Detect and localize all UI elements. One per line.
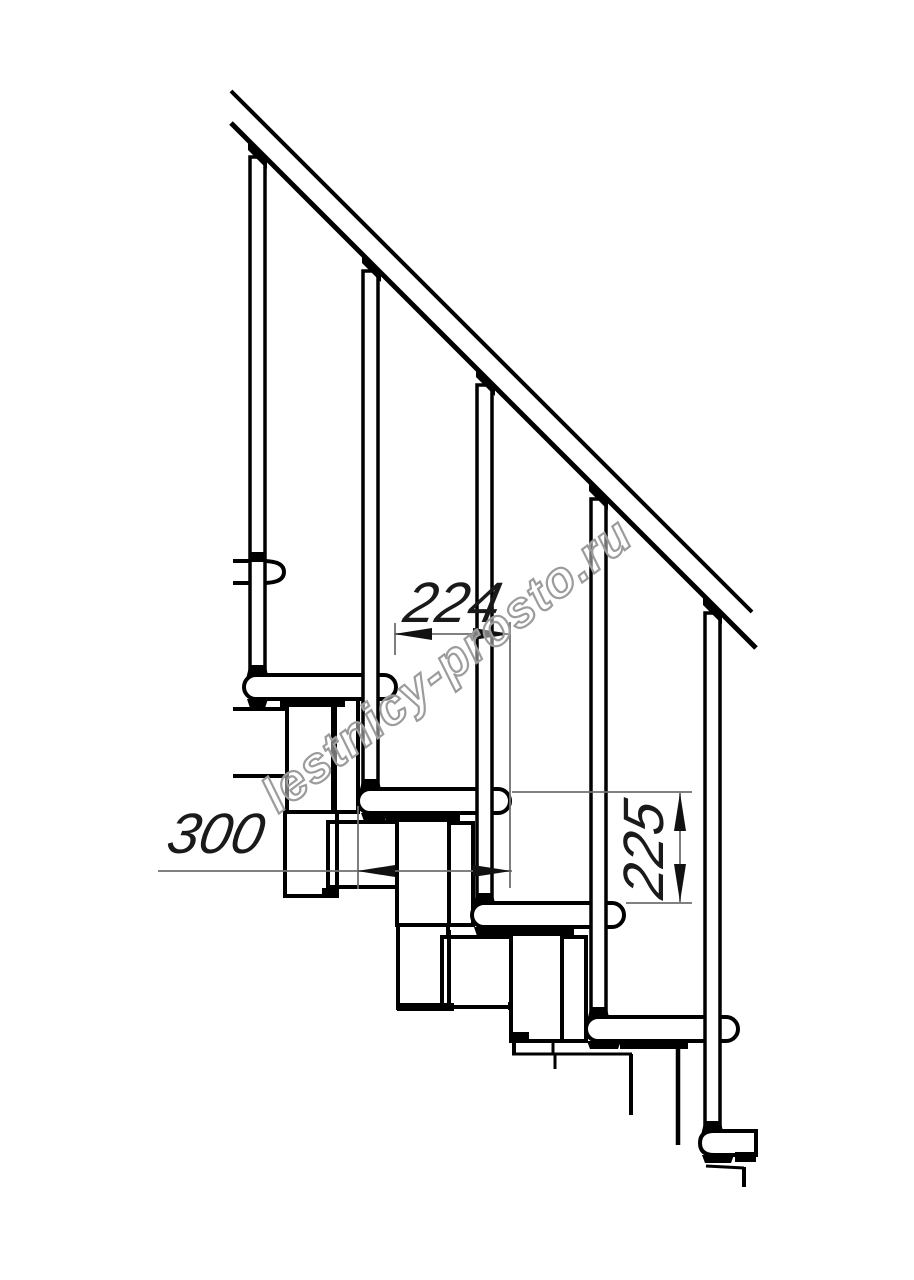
baluster-foot [588, 1007, 610, 1019]
staircase-drawing-canvas: 224 300 225 lestnicy-prosto.ru [0, 0, 914, 1280]
baluster-post [250, 157, 265, 675]
module-joint-black [511, 1032, 529, 1041]
baluster-foot [360, 779, 382, 791]
step-mount-clamp [702, 1155, 734, 1163]
module-break-line [706, 1166, 744, 1168]
baluster-post [705, 613, 720, 1131]
baluster-foot [474, 893, 496, 905]
baluster-foot [247, 665, 269, 677]
module-socket [442, 937, 518, 1007]
dimension-label-tread-depth: 300 [162, 803, 271, 866]
dimension-label-riser-height: 225 [613, 794, 676, 904]
baluster-landing-collar [249, 552, 266, 562]
module-joint-black [397, 1003, 454, 1011]
step-tread-partial [700, 1131, 756, 1155]
module-box [397, 820, 450, 925]
step-mount-plate [735, 1152, 756, 1162]
baluster-foot [702, 1121, 724, 1133]
module-tube [562, 937, 586, 1041]
module-tube [449, 823, 473, 925]
module-box [511, 934, 564, 1041]
module-joint-black [322, 888, 339, 897]
technical-drawing-page: 224 300 225 lestnicy-prosto.ru [0, 0, 914, 1280]
